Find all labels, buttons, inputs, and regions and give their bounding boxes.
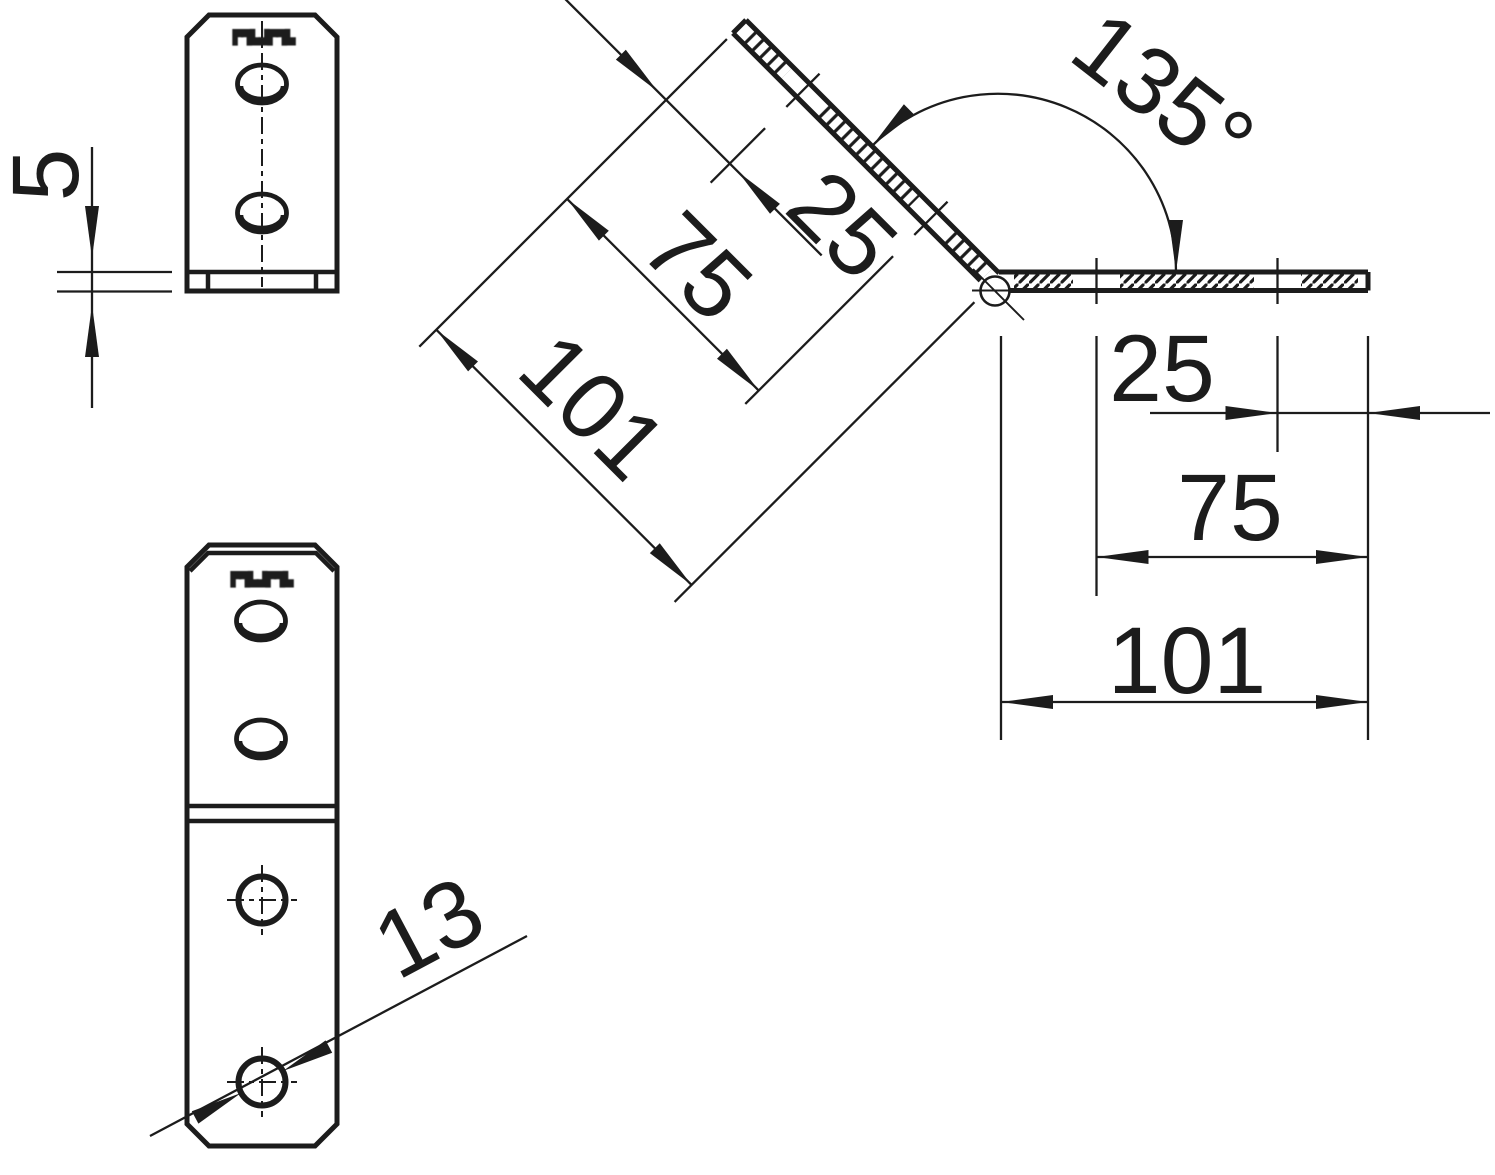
dim-135-label: 135° xyxy=(1053,0,1273,195)
plan-view-top-face-edge xyxy=(190,553,334,571)
dim-5-label: 5 xyxy=(0,149,99,202)
plan-oval-hole-2-countersink xyxy=(240,741,282,754)
dim-lower-leg-length: 101 xyxy=(1001,608,1368,714)
stamp-marking: ▛▜▙▟▛▜▙ xyxy=(229,570,294,588)
dim-lower-leg-hole2: 75 xyxy=(1097,455,1369,564)
dim-25-lower-label: 25 xyxy=(1109,316,1215,422)
upper-leg-hatch-1 xyxy=(742,29,792,79)
dim-75-upper-label: 75 xyxy=(622,192,772,342)
dim-13-label: 13 xyxy=(357,856,500,999)
lower-leg-hatch-1 xyxy=(1014,275,1073,289)
angle-bracket-drawing: ▛▜▙▟▛▜▙ 5 ▛▜▙▟▛▜▙ xyxy=(0,0,1495,1175)
technical-drawing-page: ▛▜▙▟▛▜▙ 5 ▛▜▙▟▛▜▙ xyxy=(0,0,1495,1175)
stamp-marking: ▛▜▙▟▛▜▙ xyxy=(231,28,296,46)
dim-75-lower-label: 75 xyxy=(1177,455,1283,561)
dim-plate-thickness: 5 xyxy=(0,147,172,408)
plan-oval-hole-1-countersink xyxy=(240,623,282,636)
dim-101-upper-label: 101 xyxy=(499,313,686,500)
lower-leg-hatch-2 xyxy=(1120,275,1254,289)
section-upper-leg: 25 75 101 xyxy=(308,0,1012,602)
front-view: ▛▜▙▟▛▜▙ xyxy=(187,15,337,291)
upper-leg-hatch-3 xyxy=(943,230,992,279)
dim-101-lower-label: 101 xyxy=(1108,608,1267,714)
lower-leg-hatch-3 xyxy=(1301,275,1358,289)
section-lower-leg xyxy=(972,258,1368,320)
dim-lower-leg-hole1: 25 xyxy=(1109,316,1490,422)
lower-leg-dimensions: 25 75 101 xyxy=(1001,316,1490,740)
